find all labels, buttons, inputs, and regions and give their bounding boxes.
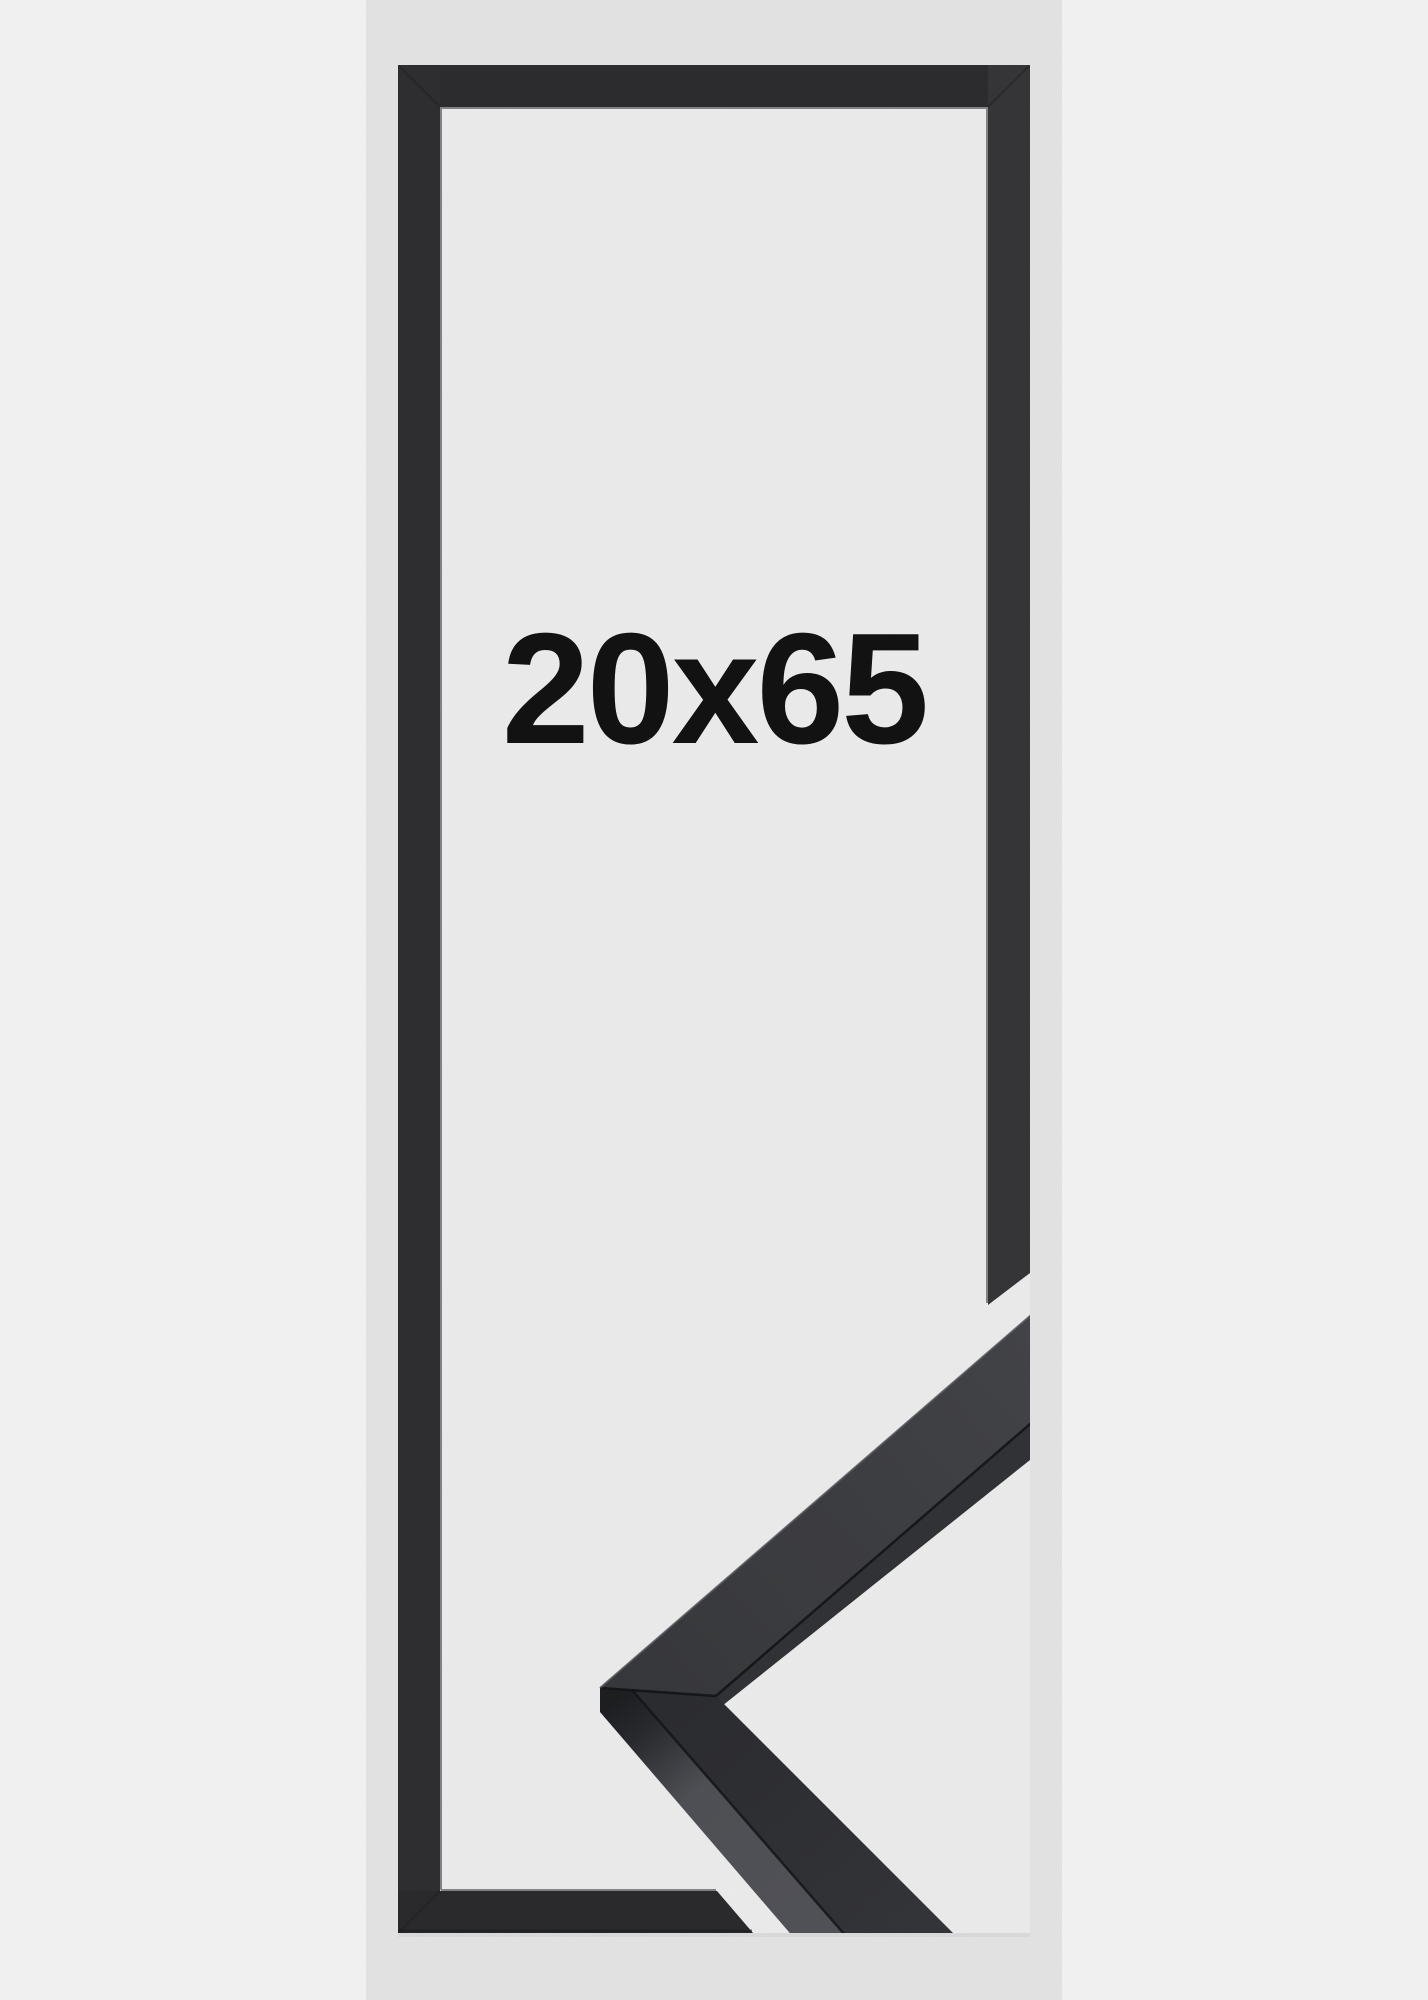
- content-shadow: [398, 1933, 1030, 1937]
- photo-grain-overlay: [398, 65, 1030, 1933]
- product-image-canvas: 20x65: [0, 0, 1428, 2000]
- frame-product-photo: 20x65: [0, 0, 1428, 2000]
- size-label: 20x65: [502, 601, 926, 777]
